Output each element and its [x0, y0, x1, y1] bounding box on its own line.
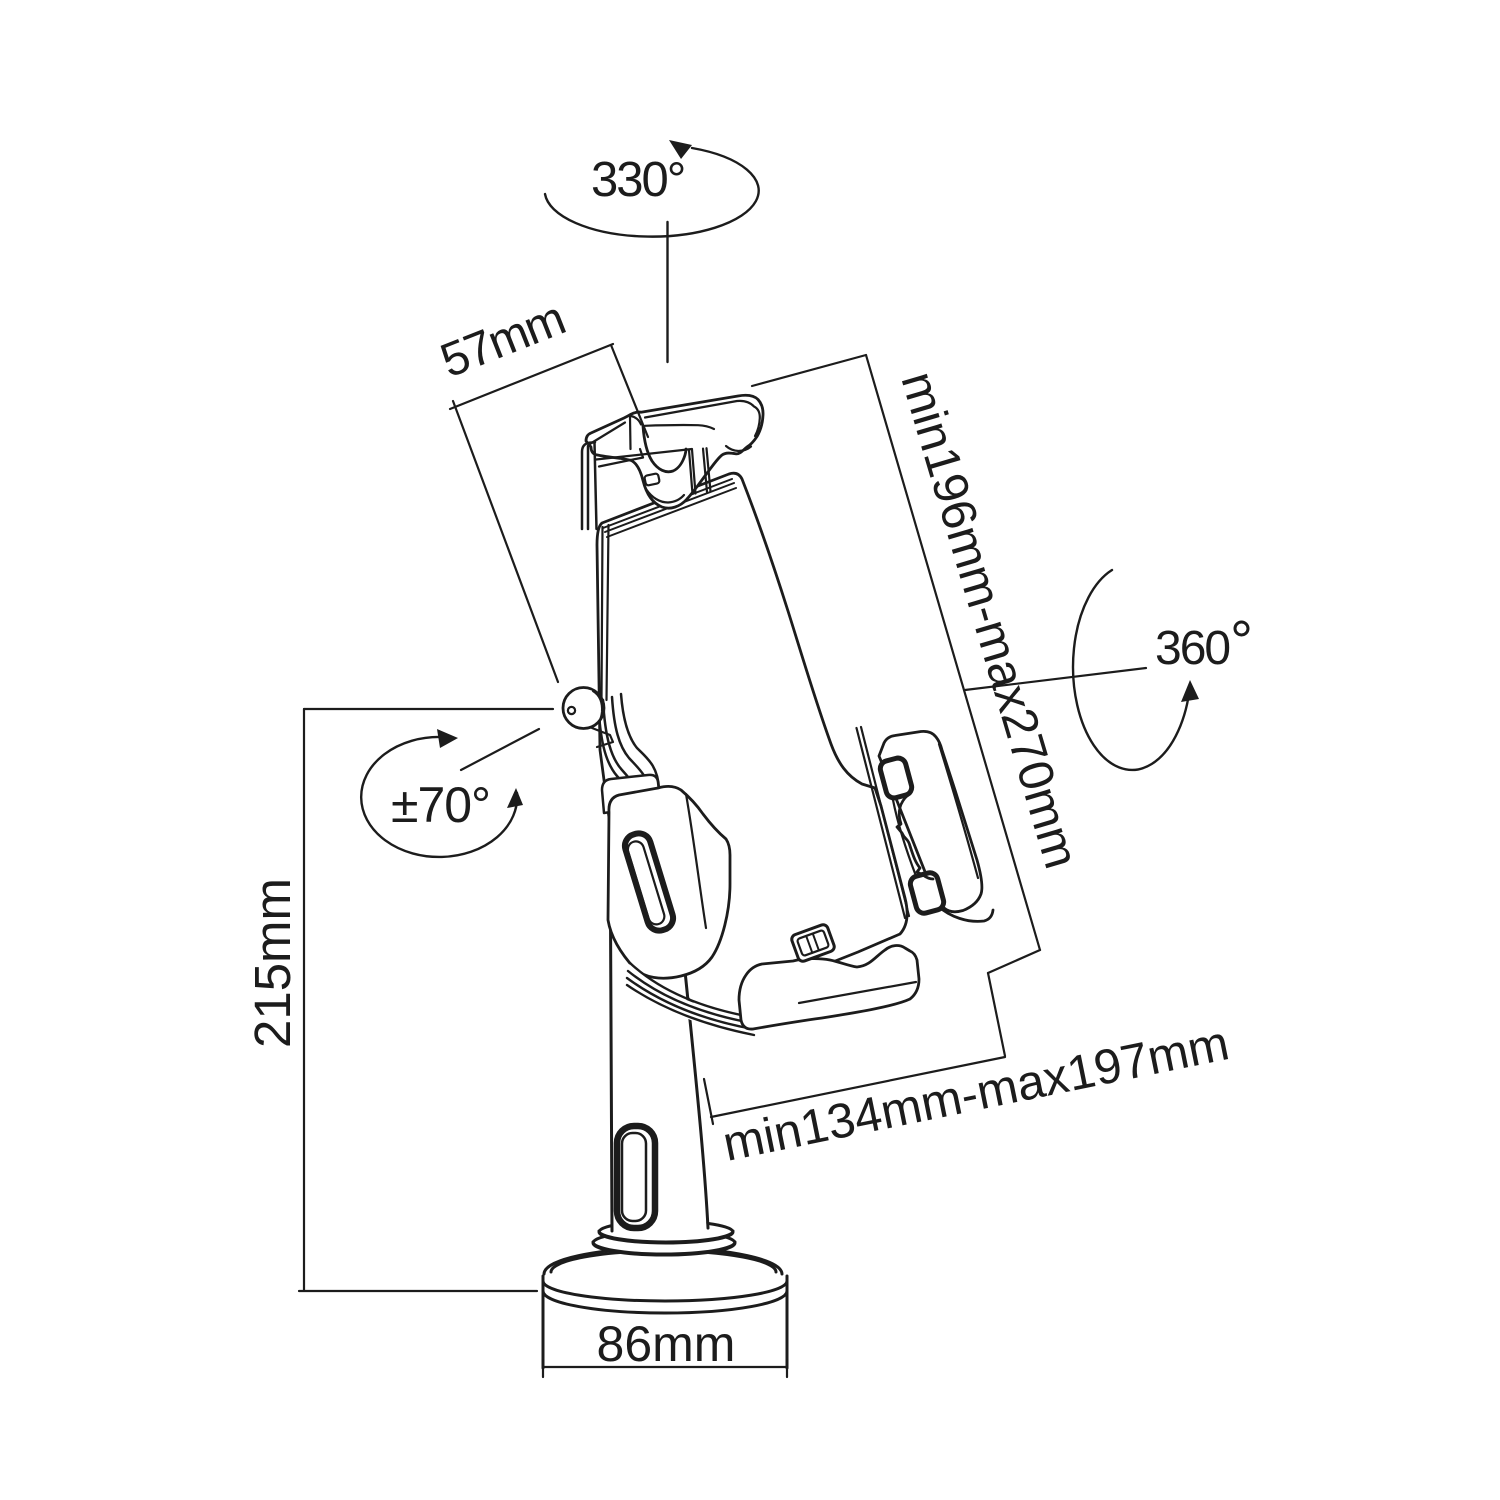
svg-text:±70°: ±70°: [391, 777, 490, 833]
svg-text:360: 360: [1155, 622, 1229, 675]
svg-text:215mm: 215mm: [244, 878, 301, 1048]
svg-text:86mm: 86mm: [597, 1316, 736, 1372]
svg-text:330°: 330°: [591, 153, 684, 207]
